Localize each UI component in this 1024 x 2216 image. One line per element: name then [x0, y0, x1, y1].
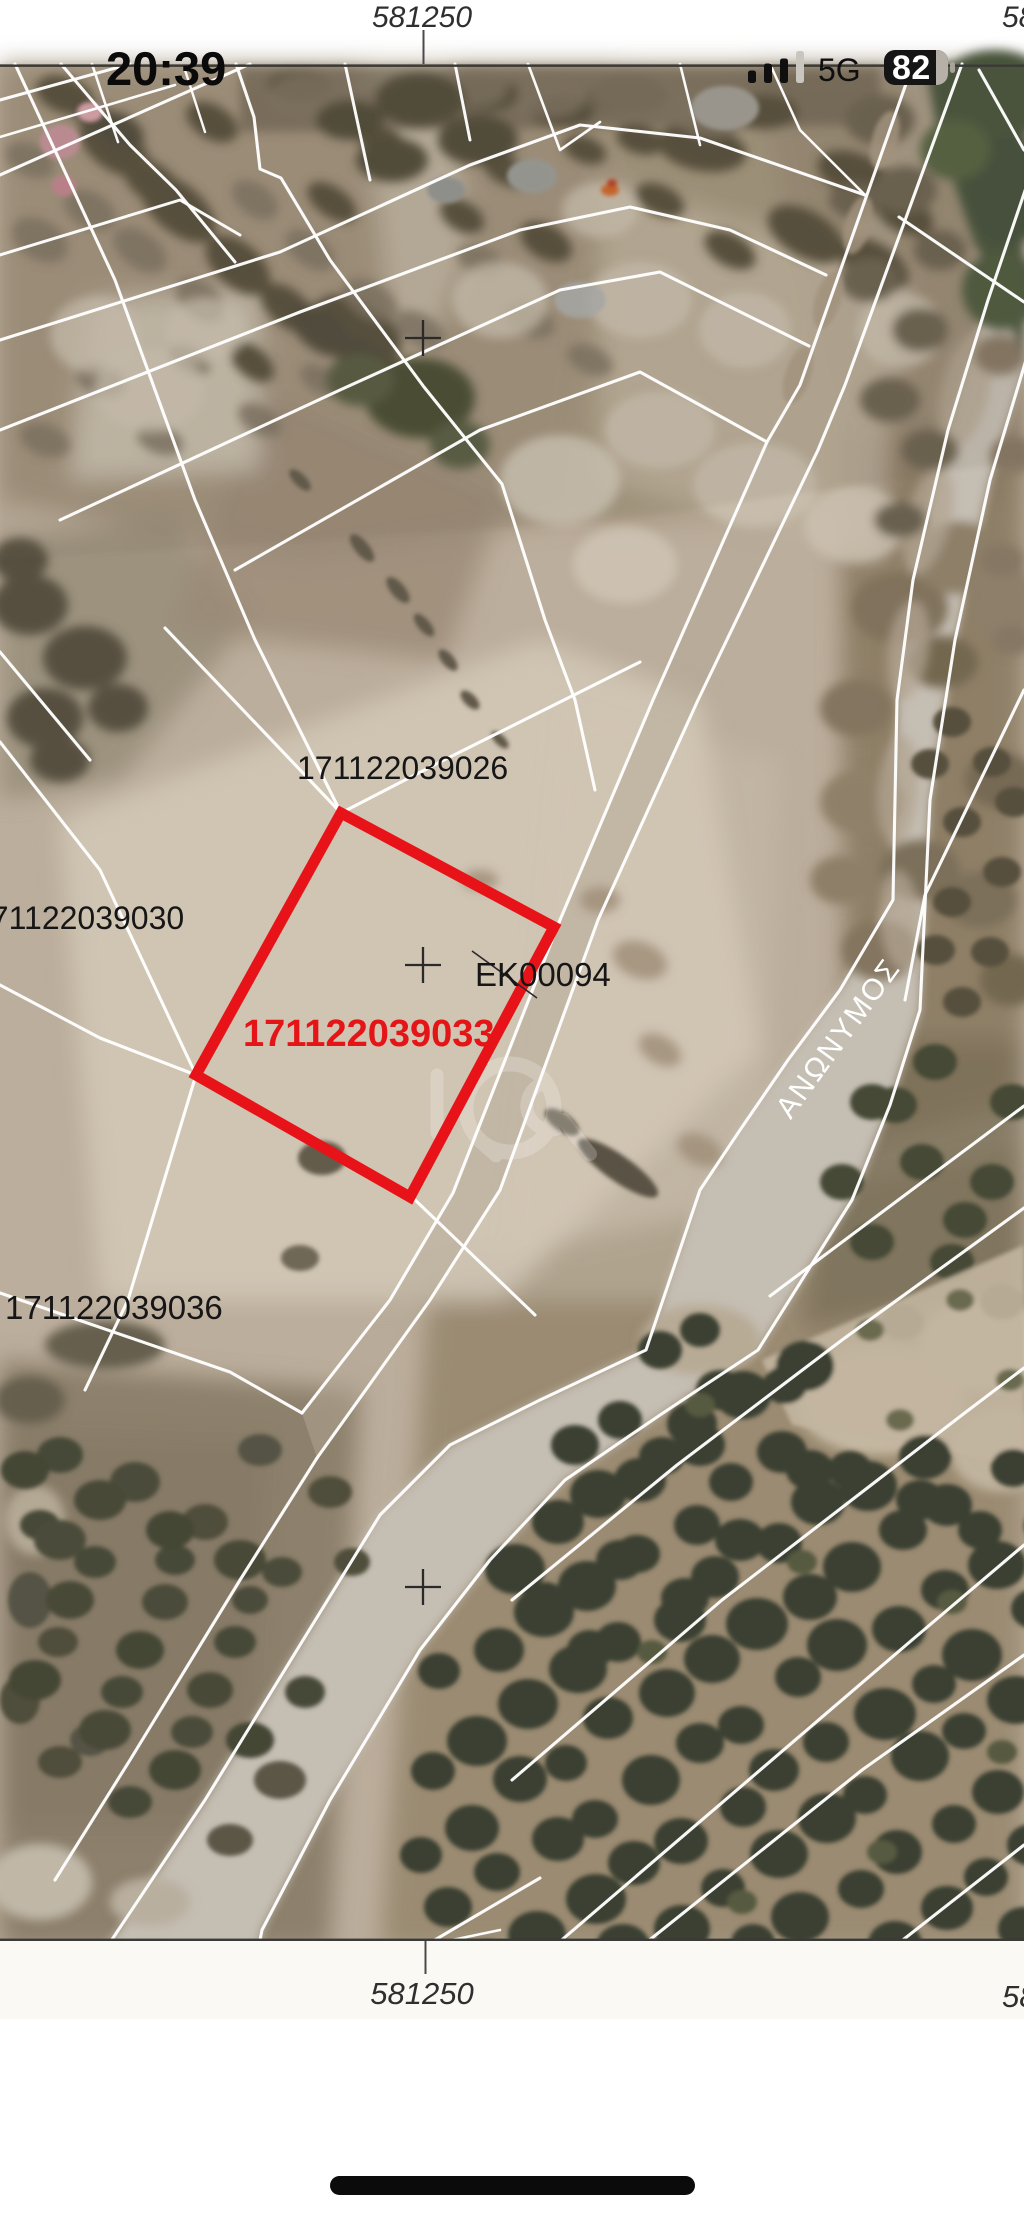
svg-text:171122039033: 171122039033: [243, 1013, 495, 1055]
svg-text:20:39: 20:39: [106, 42, 226, 95]
svg-text:581250: 581250: [372, 1, 472, 34]
svg-text:EK00094: EK00094: [475, 956, 611, 993]
svg-text:58: 58: [1002, 1979, 1024, 2014]
svg-text:82: 82: [892, 49, 931, 87]
svg-text:58: 58: [1002, 1, 1024, 34]
svg-text:5G: 5G: [818, 52, 861, 88]
svg-text:171122039030: 171122039030: [0, 900, 184, 936]
svg-text:171122039036: 171122039036: [5, 1289, 223, 1326]
svg-text:581250: 581250: [370, 1976, 473, 2011]
svg-text:171122039026: 171122039026: [297, 750, 508, 786]
